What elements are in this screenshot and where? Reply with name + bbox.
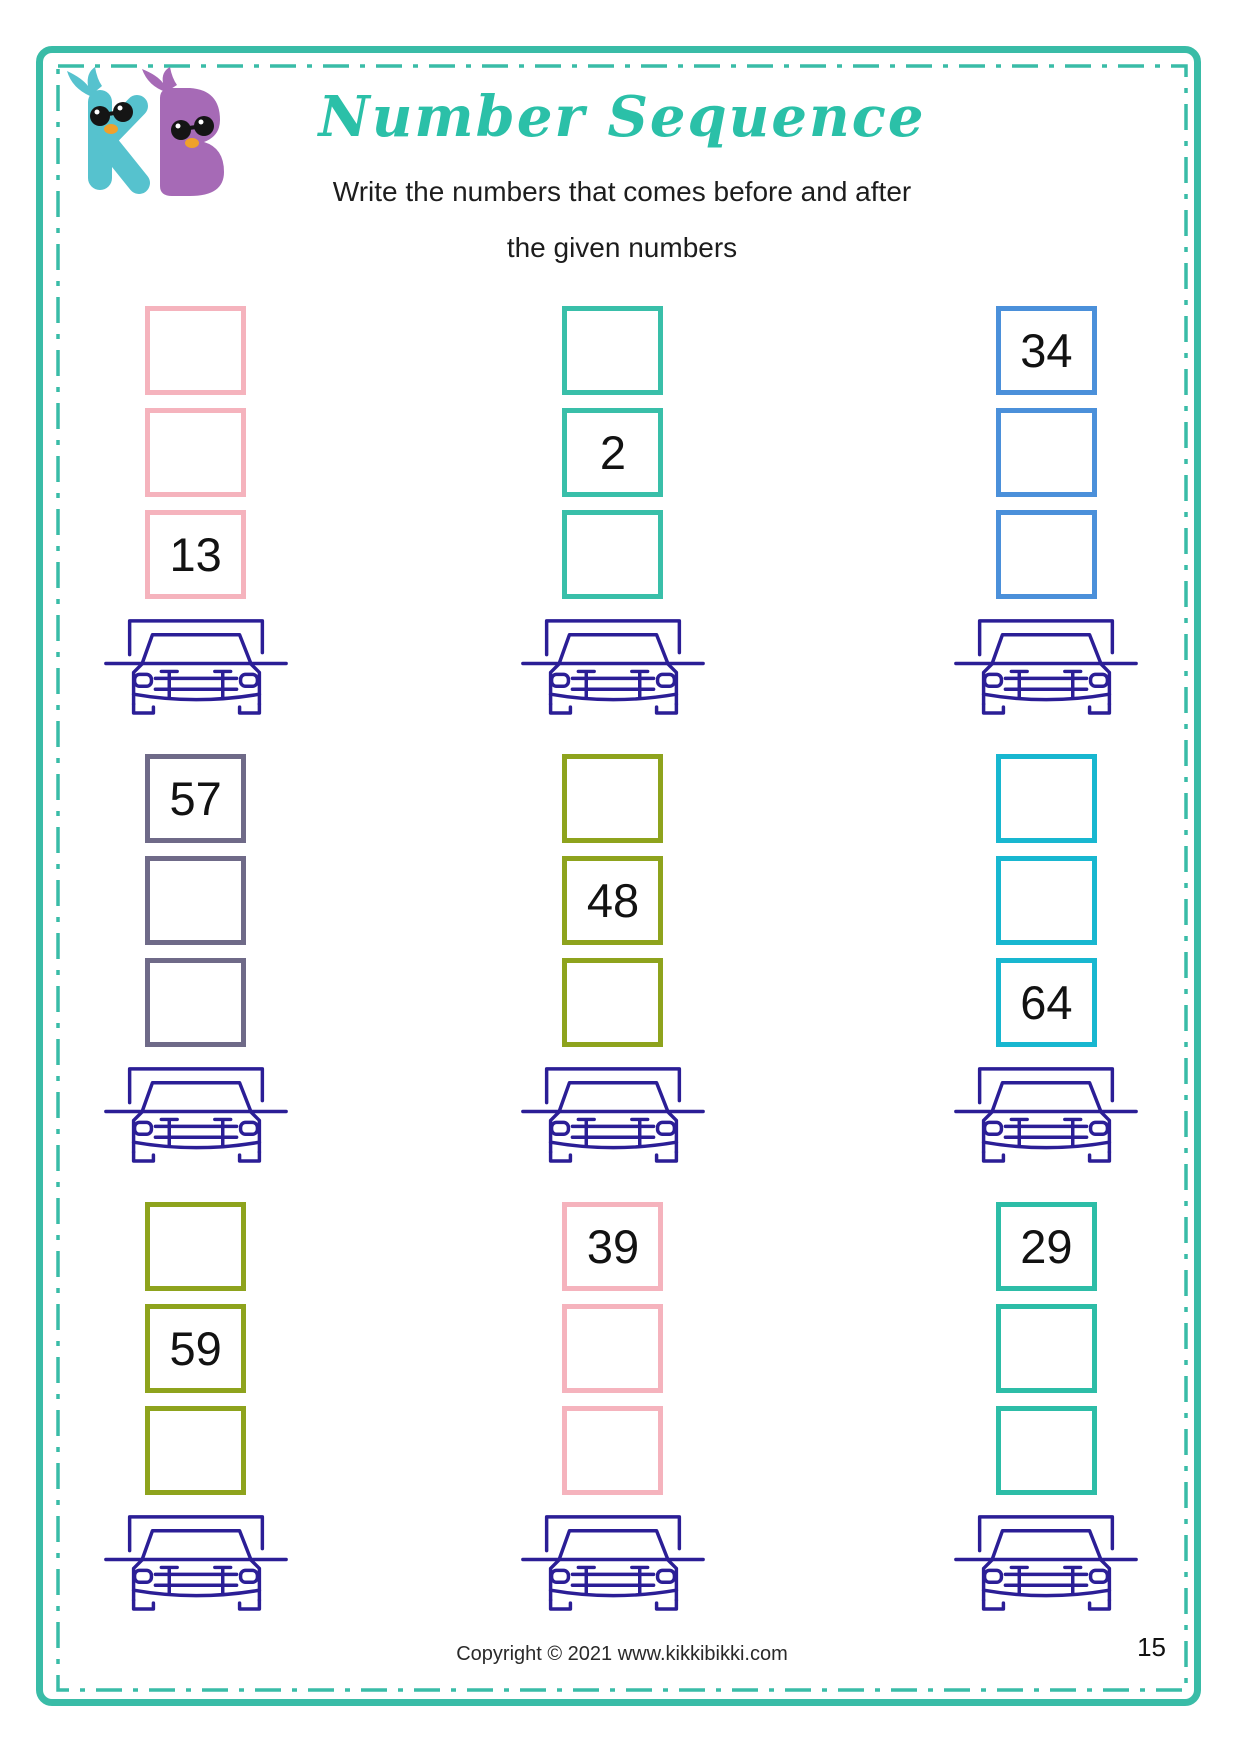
car-icon bbox=[509, 611, 717, 716]
answer-box[interactable] bbox=[562, 754, 663, 843]
problem-6: 64 bbox=[817, 748, 1206, 1196]
answer-box[interactable] bbox=[562, 510, 663, 599]
copyright-text: Copyright © 2021 www.kikkibikki.com bbox=[0, 1643, 1244, 1666]
answer-box[interactable] bbox=[145, 1406, 246, 1495]
worksheet-page: Number Sequence Write the numbers that c… bbox=[0, 0, 1244, 1755]
car-icon bbox=[92, 1507, 300, 1612]
car-icon bbox=[942, 611, 1150, 716]
answer-box[interactable] bbox=[562, 306, 663, 395]
given-number-box: 48 bbox=[562, 856, 663, 945]
answer-box[interactable] bbox=[562, 1406, 663, 1495]
instruction-line-2: the given numbers bbox=[0, 220, 1244, 276]
problem-5: 48 bbox=[427, 748, 816, 1196]
answer-box[interactable] bbox=[996, 856, 1097, 945]
answer-box[interactable] bbox=[996, 754, 1097, 843]
answer-box[interactable] bbox=[996, 1304, 1097, 1393]
given-number-box: 13 bbox=[145, 510, 246, 599]
given-number-box: 2 bbox=[562, 408, 663, 497]
given-number-box: 59 bbox=[145, 1304, 246, 1393]
given-number-box: 64 bbox=[996, 958, 1097, 1047]
answer-box[interactable] bbox=[562, 1304, 663, 1393]
answer-box[interactable] bbox=[996, 408, 1097, 497]
answer-box[interactable] bbox=[996, 510, 1097, 599]
answer-box[interactable] bbox=[562, 958, 663, 1047]
problem-4: 57 bbox=[38, 748, 427, 1196]
page-number: 15 bbox=[1137, 1632, 1166, 1663]
problem-7: 59 bbox=[38, 1196, 427, 1644]
car-icon bbox=[92, 1059, 300, 1164]
answer-box[interactable] bbox=[996, 1406, 1097, 1495]
car-icon bbox=[509, 1059, 717, 1164]
answer-box[interactable] bbox=[145, 1202, 246, 1291]
problem-8: 39 bbox=[427, 1196, 816, 1644]
instructions: Write the numbers that comes before and … bbox=[0, 164, 1244, 276]
answer-box[interactable] bbox=[145, 408, 246, 497]
given-number-box: 57 bbox=[145, 754, 246, 843]
car-icon bbox=[942, 1059, 1150, 1164]
problem-9: 29 bbox=[817, 1196, 1206, 1644]
car-icon bbox=[509, 1507, 717, 1612]
problems-grid: 13 2 bbox=[38, 300, 1206, 1644]
answer-box[interactable] bbox=[145, 958, 246, 1047]
page-title: Number Sequence bbox=[0, 84, 1244, 150]
given-number-box: 29 bbox=[996, 1202, 1097, 1291]
answer-box[interactable] bbox=[145, 856, 246, 945]
car-icon bbox=[92, 611, 300, 716]
problem-3: 34 bbox=[817, 300, 1206, 748]
given-number-box: 34 bbox=[996, 306, 1097, 395]
car-icon bbox=[942, 1507, 1150, 1612]
instruction-line-1: Write the numbers that comes before and … bbox=[0, 164, 1244, 220]
answer-box[interactable] bbox=[145, 306, 246, 395]
problem-1: 13 bbox=[38, 300, 427, 748]
given-number-box: 39 bbox=[562, 1202, 663, 1291]
problem-2: 2 bbox=[427, 300, 816, 748]
